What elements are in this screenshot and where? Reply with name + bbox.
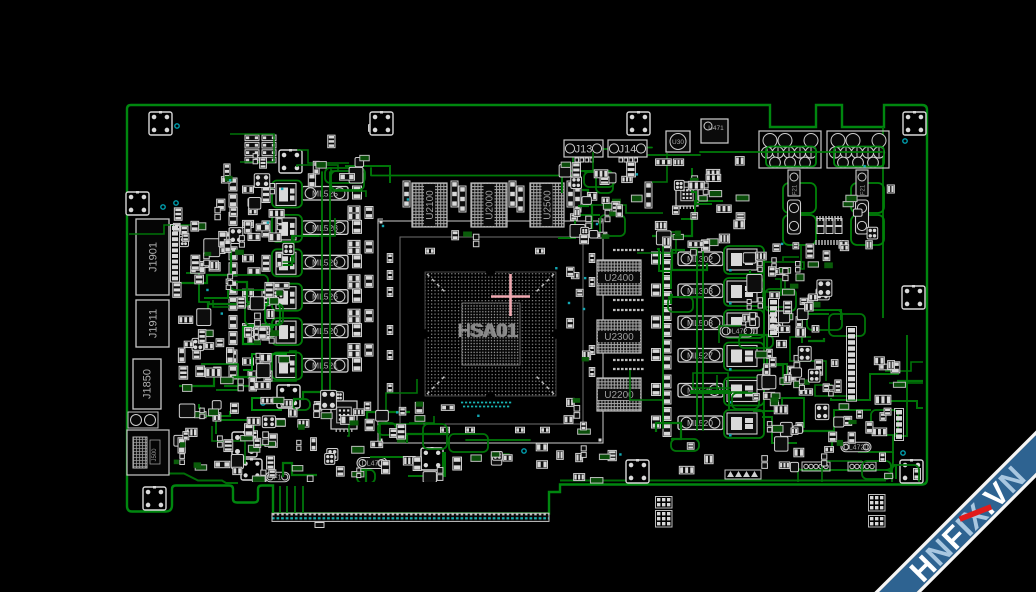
- svg-text:ML529: ML529: [312, 257, 338, 267]
- svg-text:ML527: ML527: [687, 351, 713, 361]
- svg-text:J1850: J1850: [141, 369, 153, 399]
- svg-text:F21: F21: [793, 184, 799, 195]
- svg-text:ML521: ML521: [312, 361, 338, 371]
- svg-text:ML520: ML520: [687, 418, 713, 428]
- svg-text:SA01: SA01: [469, 321, 517, 342]
- svg-text:DL4720: DL4720: [844, 445, 869, 452]
- svg-text:J1911: J1911: [147, 309, 159, 338]
- svg-text:U2000: U2000: [485, 190, 496, 220]
- svg-text:ML303: ML303: [687, 286, 713, 296]
- svg-text:ML526: ML526: [312, 292, 338, 302]
- svg-text:ML520: ML520: [312, 326, 338, 336]
- svg-text:U2100: U2100: [425, 190, 436, 220]
- svg-text:F21: F21: [861, 184, 867, 195]
- svg-text:ML508: ML508: [687, 318, 713, 328]
- svg-text:U30: U30: [672, 139, 684, 146]
- svg-text:J13: J13: [575, 144, 593, 156]
- svg-text:U2400: U2400: [604, 273, 634, 284]
- svg-text:J500: J500: [152, 448, 158, 462]
- svg-text:U2300: U2300: [604, 332, 634, 343]
- svg-text:U471: U471: [708, 125, 724, 132]
- svg-text:DL470: DL470: [362, 461, 383, 468]
- svg-text:U2500: U2500: [543, 190, 554, 220]
- svg-text:J14: J14: [619, 144, 637, 156]
- svg-text:J1901: J1901: [147, 242, 159, 272]
